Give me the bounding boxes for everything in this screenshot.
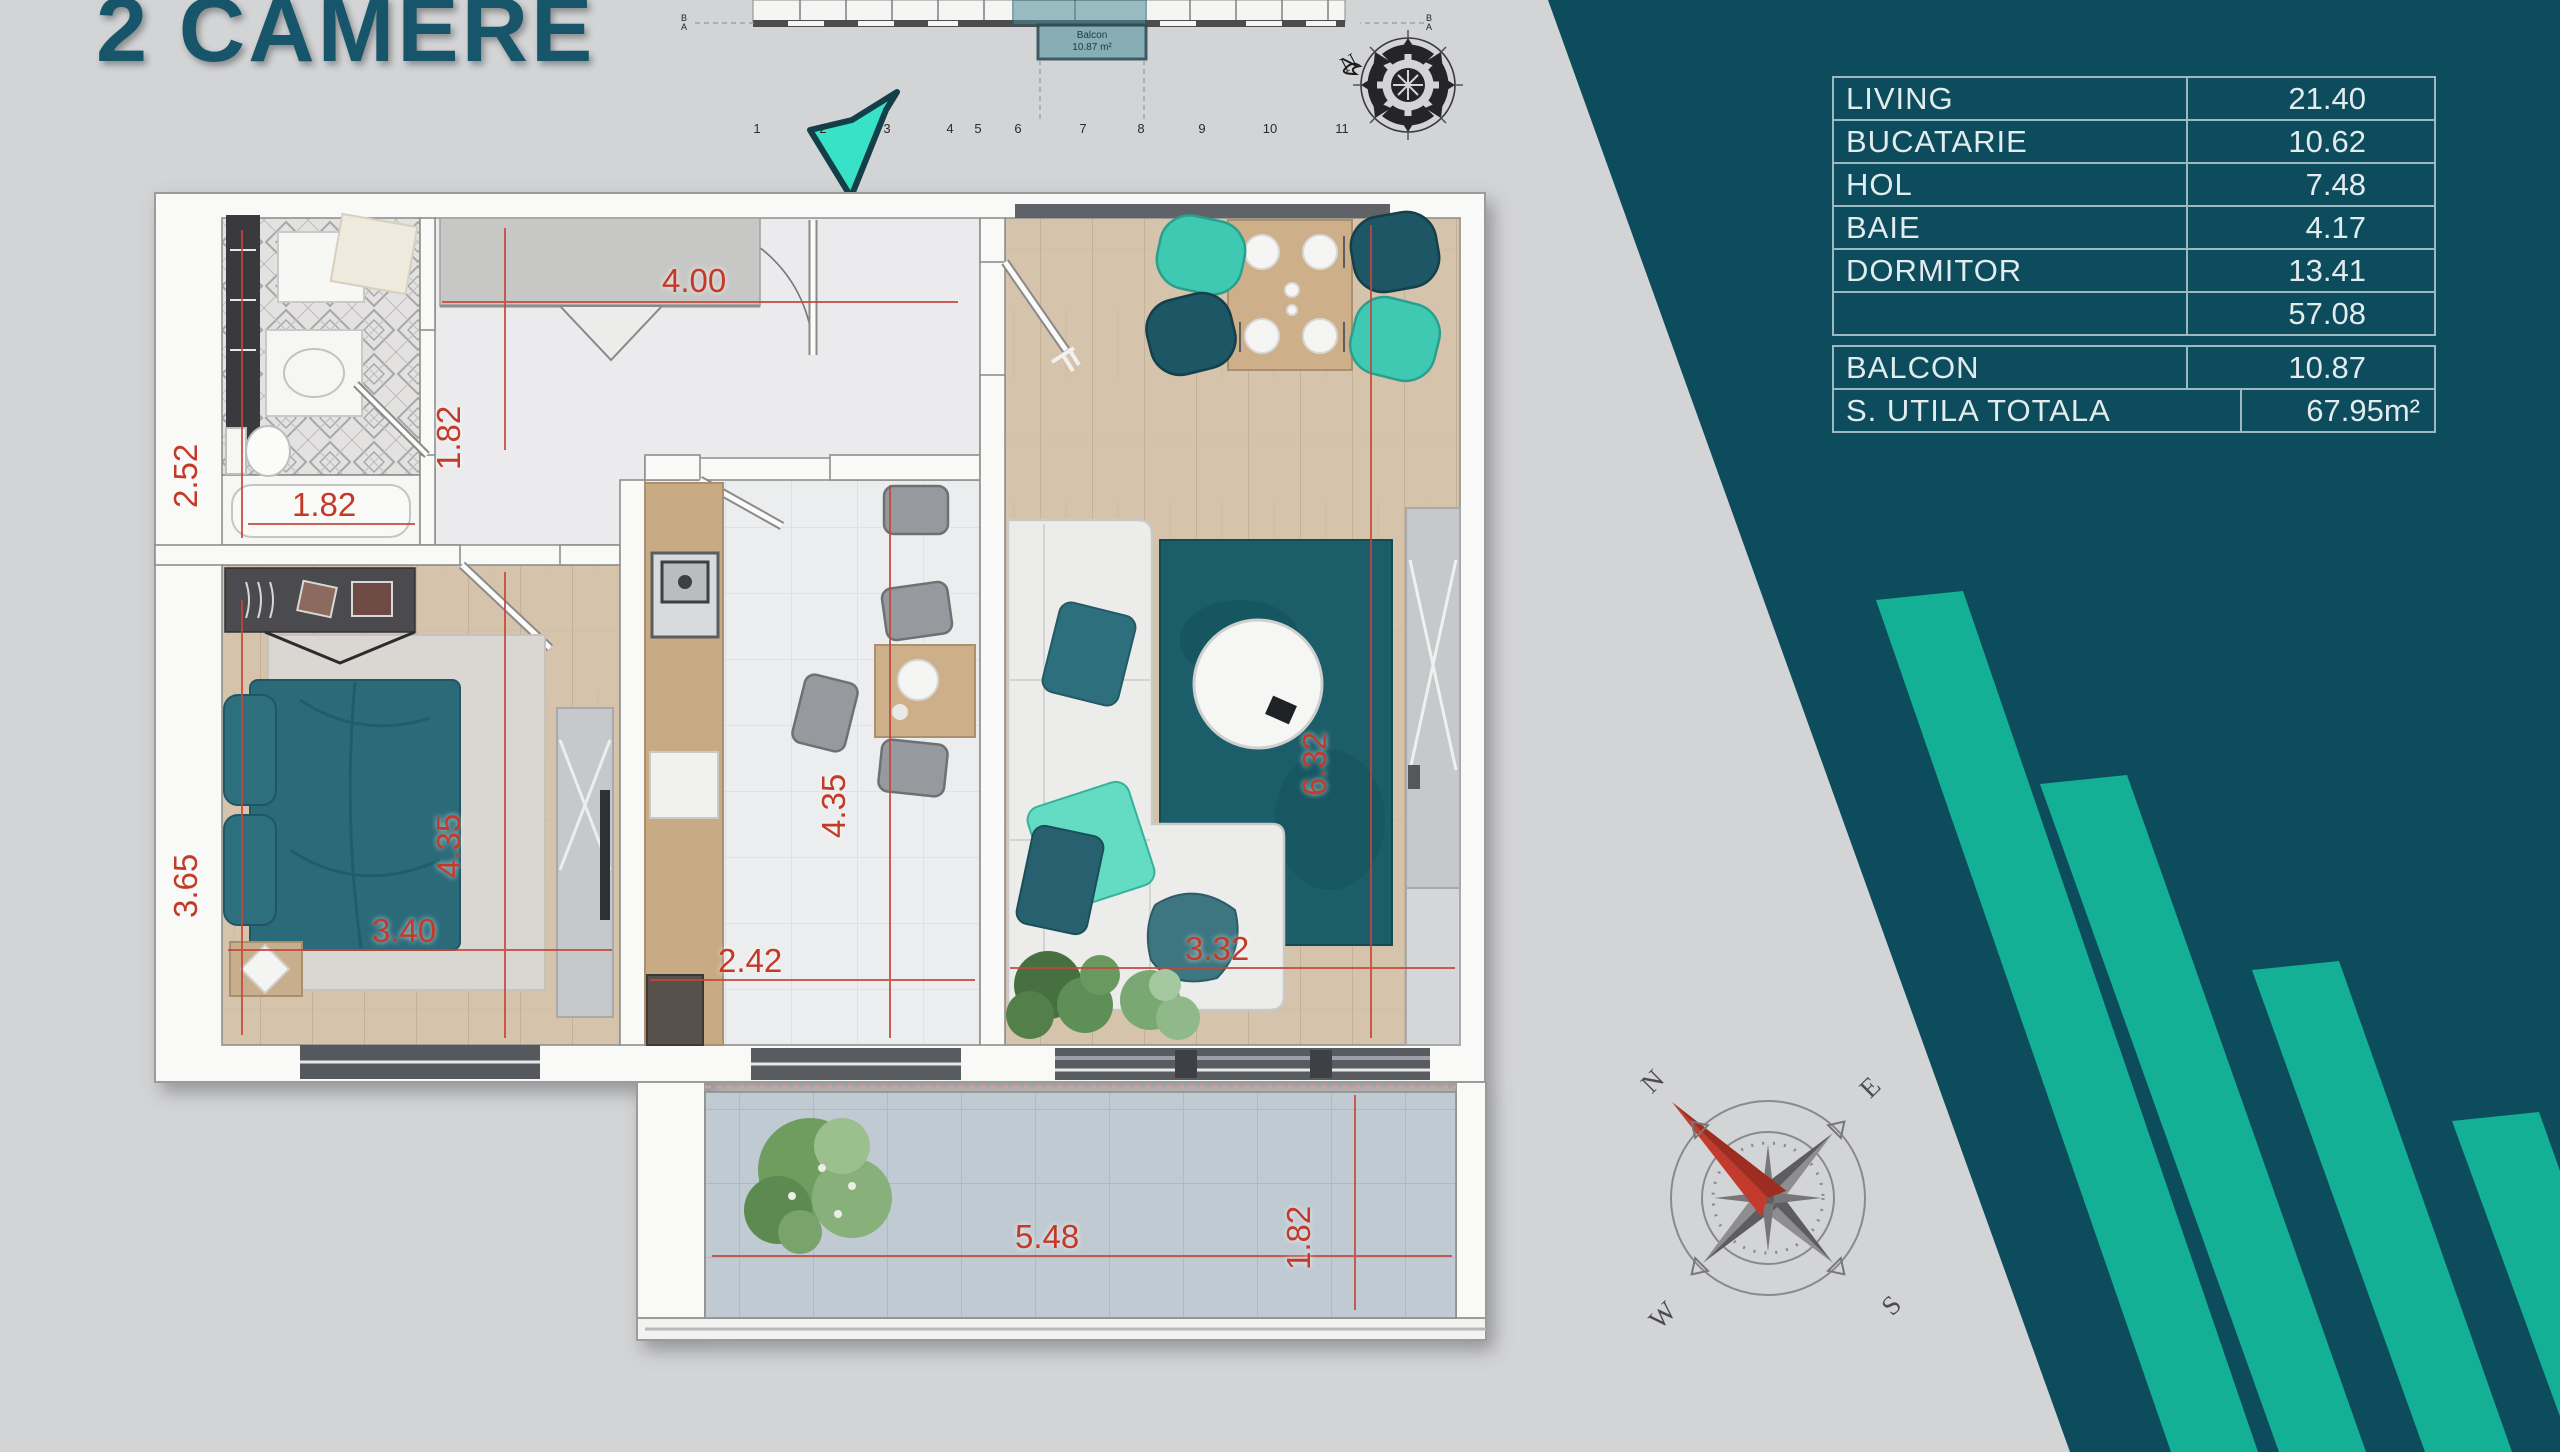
area-table: LIVING21.40 BUCATARIE10.62 HOL7.48 BAIE4… [1832,76,2436,433]
tv [600,790,610,920]
grid-number: 8 [1130,121,1152,136]
grid-number: 4 [939,121,961,136]
tv-unit [1406,508,1460,888]
dim-label: 3.40 [372,912,436,950]
dim-label: 4.00 [662,262,726,300]
table-row: DORMITOR13.41 [1832,250,2436,293]
table-row-grand-total: S. UTILA TOTALA67.95m² [1832,390,2436,433]
dim-label: 6.32 [1296,732,1334,796]
coffee-table [1194,620,1322,748]
dim-label: 3.32 [1185,930,1249,968]
table-row: LIVING21.40 [1832,76,2436,121]
dim-label: 1.82 [292,486,356,524]
dim-label: 2.42 [718,942,782,980]
grid-number: 7 [1072,121,1094,136]
grid-number: 2 [812,121,834,136]
table-row: HOL7.48 [1832,164,2436,207]
table-gap [1832,336,2436,345]
grid-number: 10 [1259,121,1281,136]
table-row-total: 57.08 [1832,293,2436,336]
grid-number: 6 [1007,121,1029,136]
table-row: BAIE4.17 [1832,207,2436,250]
highlighted-unit [1013,0,1146,25]
page: 2 CAMERE LIVING21.40 BUCATARIE10.62 HOL7… [0,0,2560,1452]
dim-label: 4.35 [815,774,853,838]
living-window-top [1015,204,1390,218]
dishwasher [650,752,718,818]
pillow [224,815,276,925]
pillow [224,695,276,805]
page-title: 2 CAMERE [96,0,595,83]
kitchen-cabinet [647,975,703,1045]
living-sliding-door [1055,1048,1430,1080]
dim-label: 1.82 [1280,1206,1318,1270]
location-arrow-icon [810,92,897,197]
table-row: BUCATARIE10.62 [1832,121,2436,164]
table-row: BALCON10.87 [1832,345,2436,390]
compass-top-icon [1344,30,1463,140]
grid-number: 3 [876,121,898,136]
sink-vanity [266,330,362,416]
grid-number: 5 [967,121,989,136]
dim-label: 2.52 [167,444,205,508]
towel [331,214,418,294]
dim-label: 4.35 [430,814,468,878]
grid-number: 11 [1331,121,1353,136]
axis-letters-left: B A [681,14,687,32]
compass-needle-north [1659,1102,1774,1217]
grid-number: 9 [1191,121,1213,136]
dim-label: 1.82 [430,406,468,470]
grid-number: 1 [746,121,768,136]
axis-letters-right: B A [1426,14,1432,32]
dim-label: 5.48 [1015,1218,1079,1256]
overview-balcony-label: Balcon 10.87 m² [1040,30,1144,54]
dim-label: 3.65 [167,854,205,918]
building-overview [695,0,1424,122]
